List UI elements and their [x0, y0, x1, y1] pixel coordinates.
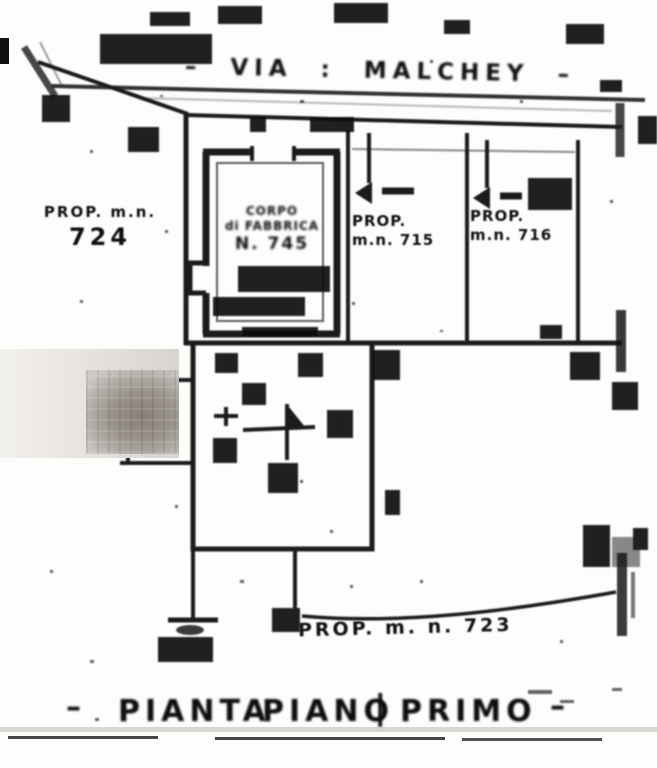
scan-edge-artifact: [0, 38, 9, 64]
parcel-724-line1: PROP. m.n.: [30, 203, 170, 222]
subject-line2: di FABBRICA: [212, 219, 332, 234]
parcel-715-label: PROP. m.n. 715: [352, 212, 442, 250]
parcel-715-line1: PROP.: [352, 212, 442, 231]
parcel-724-number: 724: [30, 222, 170, 252]
caption-baseline-segment: [8, 736, 158, 739]
subject-unit-label: CORPO di FABBRICA N. 745: [212, 204, 332, 255]
entrance-arrow-715: [355, 133, 414, 204]
caption-separator: |: [374, 688, 391, 728]
parcel-716-label: PROP. m.n. 716: [470, 207, 565, 245]
subject-number: N. 745: [212, 234, 332, 255]
ground-marker: [168, 620, 218, 635]
subject-line1: CORPO: [212, 204, 332, 219]
door-opening-stubs: [252, 146, 294, 161]
caption-baseline-segment: [462, 738, 602, 741]
left-wall-niche: [190, 263, 206, 293]
caption-word-primo: PRIMO: [400, 694, 537, 729]
parcel-716-line1: PROP.: [470, 207, 565, 226]
caption-underline: [0, 727, 657, 732]
parcel-724-label: PROP. m.n. 724: [30, 203, 170, 252]
scanned-floor-plan: – VIA : MALCHEY – PROP. m.n. 724 CORPO d…: [0, 0, 657, 768]
cross-mark: [214, 407, 238, 426]
caption-word-pianta: PIANTA: [118, 694, 271, 729]
redaction-blur-core: [86, 370, 179, 454]
caption-dash-right: –: [550, 689, 570, 724]
facade-inner-line: [352, 149, 575, 152]
parcel-716-number: m.n. 716: [470, 226, 565, 245]
caption-dash-left: –: [66, 690, 86, 725]
caption-baseline-segment: [215, 737, 445, 740]
parcel-715-number: m.n. 715: [352, 231, 442, 250]
north-arrow: [243, 404, 315, 460]
